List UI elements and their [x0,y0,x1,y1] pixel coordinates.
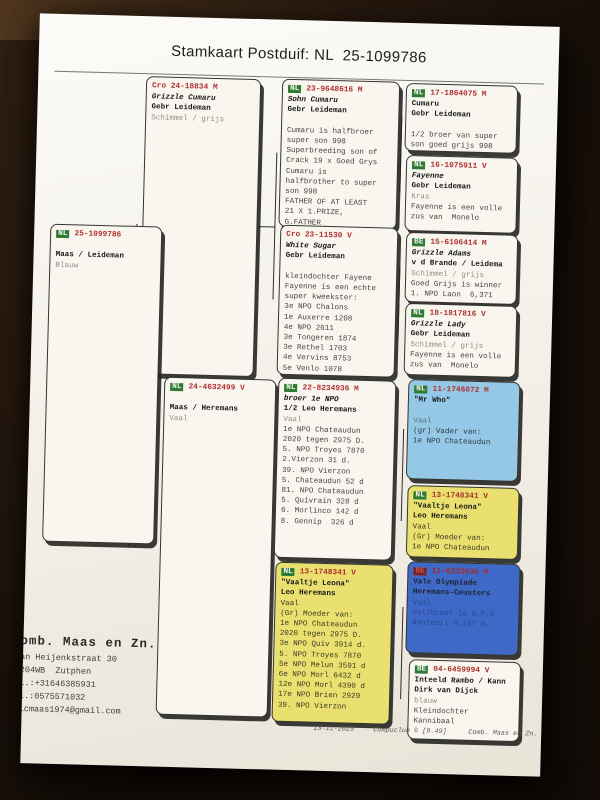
paper-sheet: Stamkaart Postduif: NL 25-1099786 NL25-1… [20,13,559,776]
pedigree-line: 1e NPO Chateaudun [412,542,512,555]
pedigree-box-g3b: Cro 23-11530 VWhite SugarGebr Leideman k… [277,225,399,378]
pedigree-line: Schimmel / grijs [151,113,254,126]
breeder-contact: omb. Maas en Zn. an Heijenkstraat 30 204… [20,634,156,720]
country-badge: NL [412,89,426,97]
connector-line [400,607,403,699]
document-title: Stamkaart Postduif: NL 25-1099786 [39,39,559,70]
pedigree-line: 5e Venlo 1078 [283,363,389,376]
country-badge: NL [414,385,428,393]
country-badge: NL [281,568,295,576]
pedigree-line: 1e NPO Chateaudun [413,436,513,449]
photo-scene: Stamkaart Postduif: NL 25-1099786 NL25-1… [0,0,600,800]
connector-line [257,226,275,227]
pedigree-box-g4c: BE15-6106414 MGrizzle Adamsv d Brande / … [404,232,518,305]
connector-line [399,117,402,193]
breeder-email: icmaas1974@gmail.com [20,703,155,720]
pedigree-box-g4e: NL11-1746072 M"Mr Who" Vaal(gr) Vader va… [406,379,521,482]
pedigree-box-g4b: NL16-1075911 VFayenneGebr LeidemanKrasFa… [404,155,518,234]
country-badge: BE [415,665,429,673]
country-badge: NL [56,230,70,238]
footer-software: Compuclub © [9.49] [373,726,447,736]
pedigree-box-g3d: NL13-1748341 V"Vaaltje Leona"Leo Hereman… [271,562,393,725]
pedigree-box-g4d: NL18-1817816 VGrizzle LadyGebr LeidemanS… [404,303,518,378]
pedigree-line: 39. NPO Vierzon [278,700,384,713]
connector-line [401,429,404,521]
country-badge: BE [413,567,427,575]
pedigree-line: Vaal [169,413,269,426]
country-badge: BE [412,238,426,246]
pedigree-box-g4a: NL17-1864075 MCumaruGebr Leideman 1/2 br… [404,83,518,154]
breeder-name: omb. Maas en Zn. [20,634,156,652]
pedigree-line: 8. Gennip 326 d [281,516,387,529]
pedigree-line: Nanteuil 4,157 d. [412,618,513,631]
country-badge: NL [411,309,425,317]
country-badge: NL [284,384,298,392]
pedigree-box-g3c: NL22-8234936 Mbroer 1e NPO1/2 Leo Herema… [274,378,397,561]
country-badge: NL [288,85,302,93]
pedigree-box-g4f: NL13-1748341 V"Vaaltje Leona"Leo Hereman… [406,485,520,560]
pedigree-box-g3a: NL23-9648616 MSohn CumaruGebr Leideman C… [278,79,400,230]
country-badge: NL [170,383,184,391]
country-badge: NL [412,161,426,169]
footer-date: 13-11-2025 [313,725,354,734]
connector-line [398,267,401,339]
country-badge: NL [413,491,427,499]
pedigree-box-g4g: BE11-6233636 MVale OlympiadeHeremans-Ceu… [405,561,520,656]
pedigree-line: Blauw [55,260,155,273]
pedigree-box-subject: NL25-1099786 Maas / LeidemanBlauw [42,224,162,545]
pedigree-box-dam: NL24-4632499 V Maas / HeremansVaal [156,377,277,718]
